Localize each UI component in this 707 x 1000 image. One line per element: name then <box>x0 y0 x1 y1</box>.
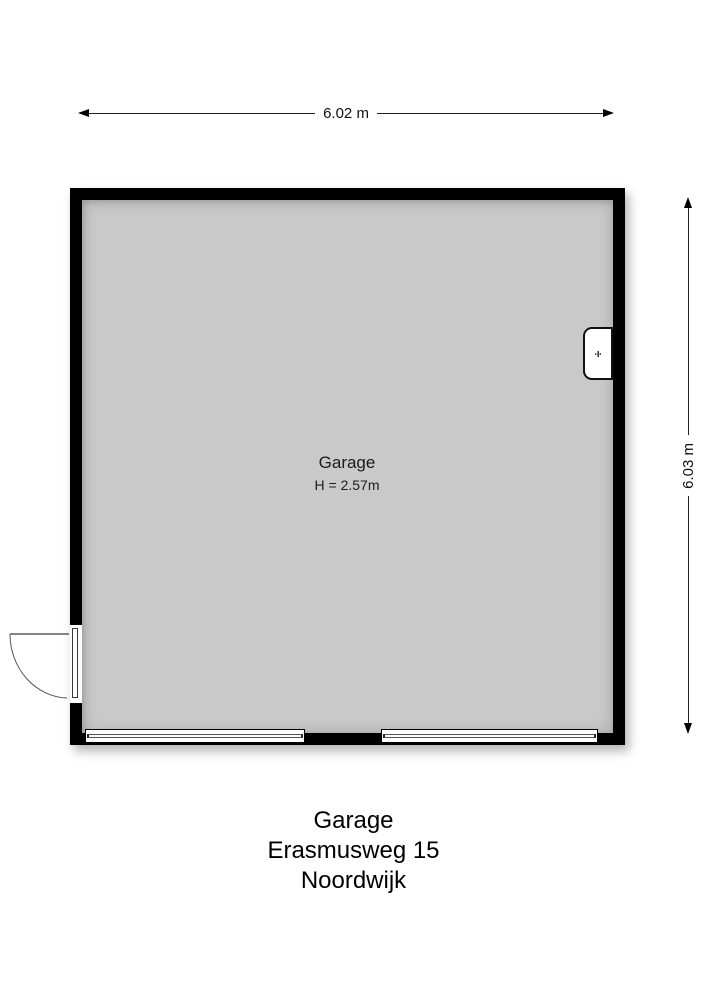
dimension-line <box>377 113 603 114</box>
arrowhead-down-icon <box>684 723 692 734</box>
dimension-height: 6.03 m <box>680 197 696 734</box>
door-swing-icon <box>0 600 110 740</box>
window-glazing <box>383 734 596 738</box>
room-height-label: H = 2.57m <box>247 477 447 493</box>
address-street: Erasmusweg 15 <box>0 836 707 866</box>
arrowhead-up-icon <box>684 197 692 208</box>
window-glazing <box>87 734 303 738</box>
room-name: Garage <box>247 453 447 473</box>
garage-floor: Garage H = 2.57m <box>82 200 613 733</box>
fixture-symbol-icon: ÷ <box>592 350 604 357</box>
room-label-block: Garage H = 2.57m <box>247 453 447 493</box>
floorplan-page: 6.02 m Garage H = 2.57m ÷ <box>0 0 707 1000</box>
address-city: Noordwijk <box>0 866 707 896</box>
wall-fixture: ÷ <box>583 327 613 380</box>
garage-building-walls: Garage H = 2.57m ÷ <box>70 188 625 745</box>
dimension-line <box>688 208 689 435</box>
dimension-width: 6.02 m <box>78 106 614 120</box>
dimension-width-label: 6.02 m <box>315 105 377 122</box>
address-title: Garage <box>0 806 707 836</box>
arrowhead-left-icon <box>78 109 89 117</box>
address-block: Garage Erasmusweg 15 Noordwijk <box>0 806 707 896</box>
dimension-line <box>89 113 315 114</box>
dimension-line <box>688 496 689 723</box>
window-left <box>85 729 305 743</box>
dimension-height-label: 6.03 m <box>680 435 697 497</box>
arrowhead-right-icon <box>603 109 614 117</box>
window-right <box>381 729 598 743</box>
